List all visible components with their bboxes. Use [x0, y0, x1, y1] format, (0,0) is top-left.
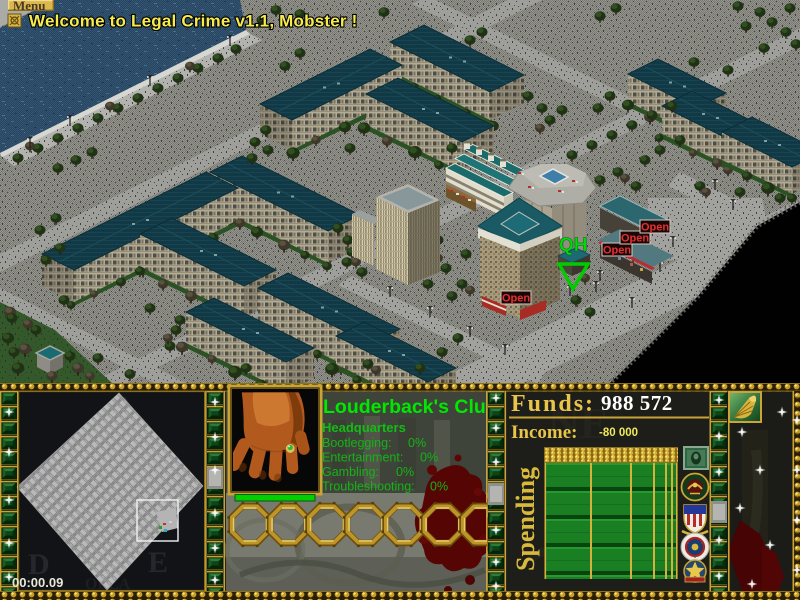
- svg-text:Open: Open: [603, 245, 631, 257]
- svg-text:QH: QH: [559, 235, 588, 256]
- svg-text:Headquarters: Headquarters: [322, 420, 406, 435]
- svg-text:Income:: Income:: [511, 422, 577, 443]
- svg-text:Funds:: Funds:: [511, 391, 595, 417]
- svg-text:Open: Open: [641, 222, 669, 234]
- svg-text:Gambling:: Gambling:: [322, 465, 379, 479]
- svg-text:Spending: Spending: [511, 467, 540, 571]
- svg-text:Welcome to Legal Crime v1.1, M: Welcome to Legal Crime v1.1, Mobster !: [29, 12, 357, 31]
- svg-text:Open: Open: [621, 233, 649, 245]
- svg-text:E: E: [148, 546, 168, 579]
- svg-text:Bootlegging:: Bootlegging:: [322, 436, 392, 450]
- svg-text:0%: 0%: [396, 465, 414, 479]
- svg-text:0%: 0%: [408, 436, 426, 450]
- svg-text:Entertainment:: Entertainment:: [322, 451, 403, 465]
- svg-text:Louderback's Clu: Louderback's Clu: [323, 396, 486, 418]
- svg-text:Troubleshooting:: Troubleshooting:: [322, 480, 415, 494]
- svg-text:988 572: 988 572: [601, 391, 673, 415]
- svg-text:-80 000: -80 000: [599, 427, 638, 439]
- svg-text:0%: 0%: [430, 480, 448, 494]
- svg-text:00:00.09: 00:00.09: [12, 575, 63, 590]
- svg-text:Open: Open: [502, 293, 530, 305]
- svg-text:0%: 0%: [420, 451, 438, 465]
